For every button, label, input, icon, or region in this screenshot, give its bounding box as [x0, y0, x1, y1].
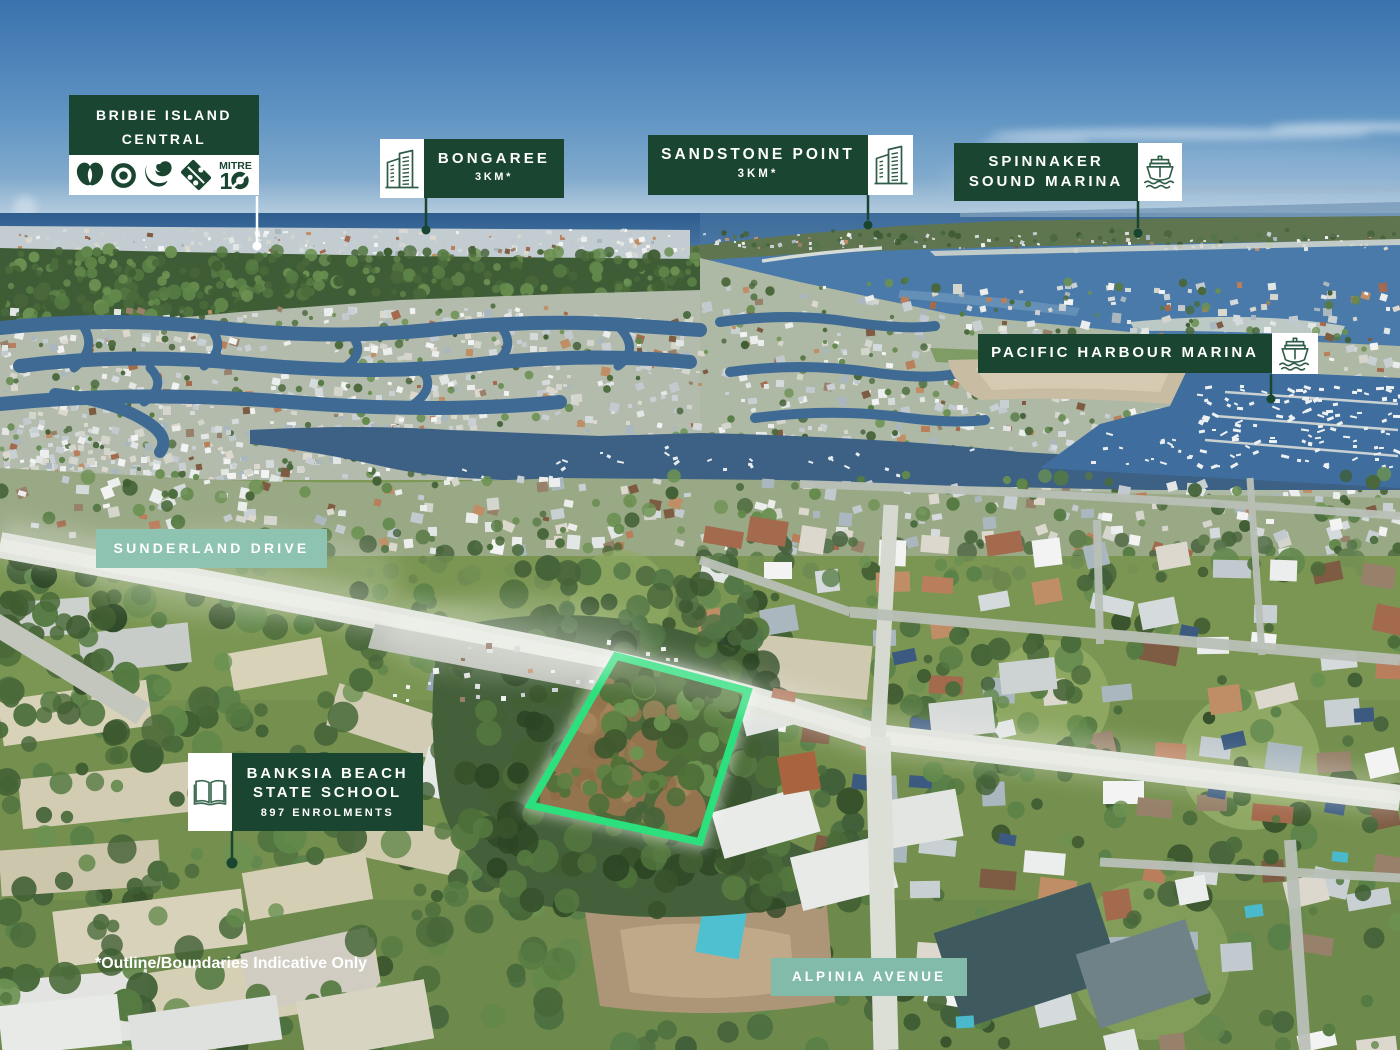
svg-text:1: 1	[220, 168, 233, 191]
